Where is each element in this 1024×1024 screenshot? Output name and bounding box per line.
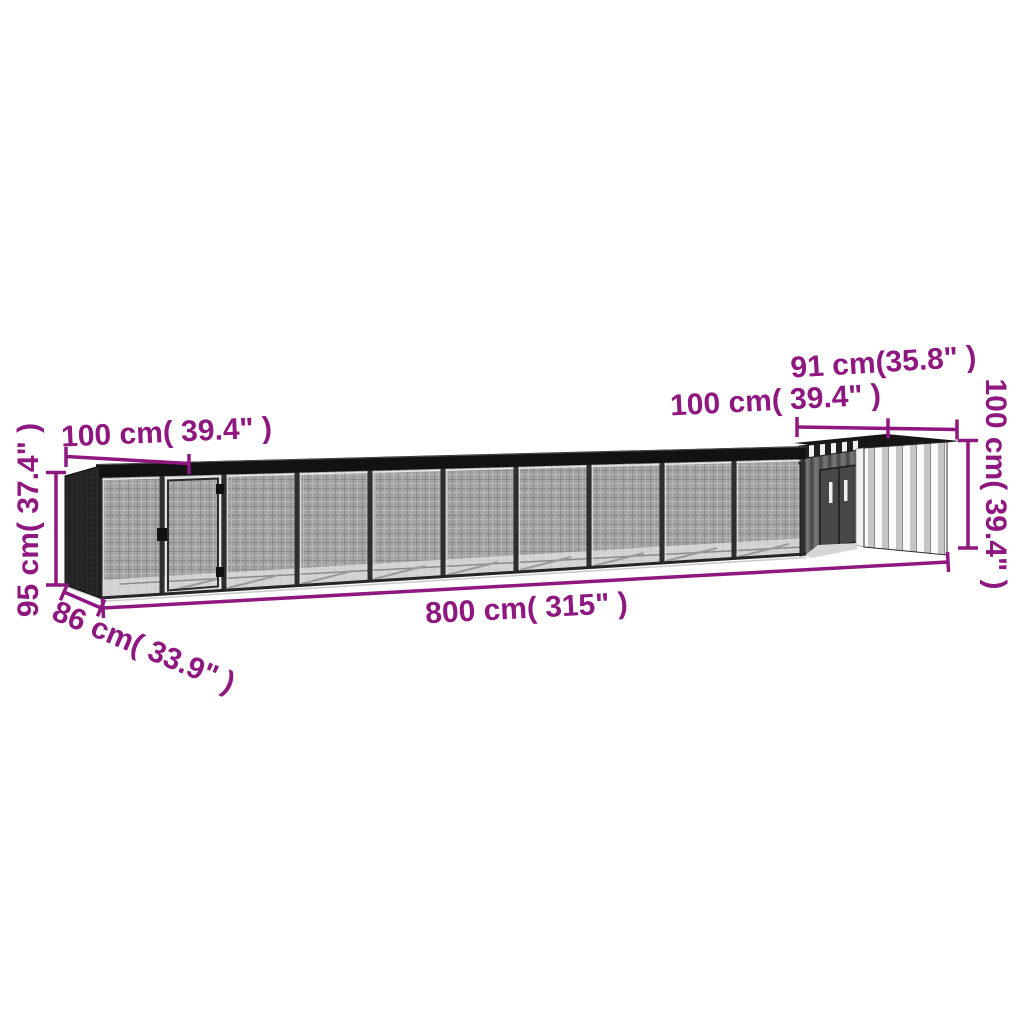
- label-run-height: 95 cm( 37.4" ): [12, 423, 45, 617]
- arrow-run-height: [46, 473, 66, 586]
- coop-door-hinge-left: [829, 482, 833, 503]
- run-door-latch: [157, 528, 167, 541]
- run-left-end-panel: [65, 466, 100, 598]
- product-dimension-diagram: 100 cm( 39.4" ) 95 cm( 37.4" ) 86 cm( 33…: [0, 0, 1024, 1024]
- label-coop-width: 91 cm(35.8" ): [790, 340, 978, 384]
- coop-shed: [794, 434, 960, 558]
- label-coop-height: 100 cm( 39.4" ): [979, 378, 1012, 589]
- label-run-section-width: 100 cm( 39.4" ): [60, 411, 272, 453]
- label-coop-roof-depth: 100 cm( 39.4" ): [669, 379, 881, 423]
- coop-corner-post: [856, 448, 864, 547]
- coop-door-hinge-right: [844, 480, 848, 501]
- chicken-coop-illustration: 100 cm( 39.4" ) 95 cm( 37.4" ) 86 cm( 33…: [0, 0, 1024, 1024]
- run-door-hinge-top: [216, 484, 224, 494]
- coop-side-wall: [864, 442, 947, 555]
- run-door-hinge-bottom: [216, 567, 224, 577]
- label-run-depth: 86 cm( 33.9" ): [48, 595, 240, 700]
- arrow-coop-height: [958, 441, 978, 549]
- label-total-length: 800 cm( 315" ): [424, 587, 628, 631]
